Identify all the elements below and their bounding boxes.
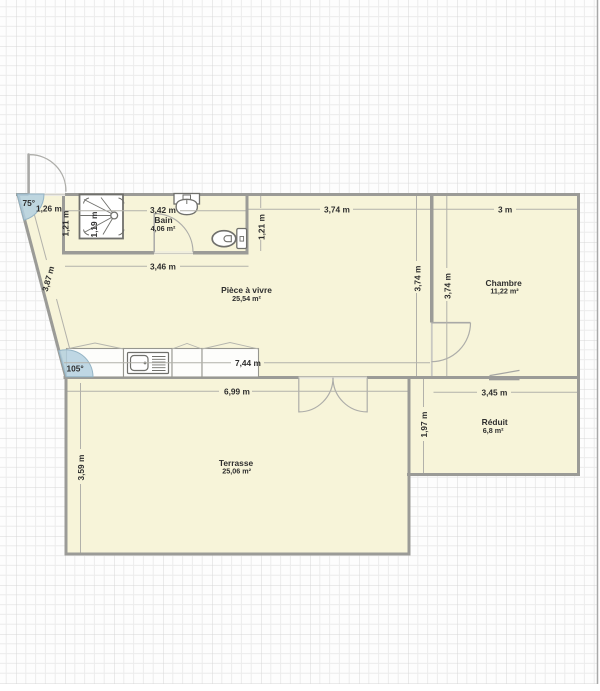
svg-text:11,22 m²: 11,22 m² xyxy=(490,287,519,296)
svg-text:25,54 m²: 25,54 m² xyxy=(232,294,261,303)
svg-text:75°: 75° xyxy=(23,198,36,208)
svg-text:3,46 m: 3,46 m xyxy=(150,261,176,271)
svg-text:1,26 m: 1,26 m xyxy=(36,204,62,214)
svg-text:1,19 m: 1,19 m xyxy=(89,212,99,238)
svg-text:3,74 m: 3,74 m xyxy=(324,204,350,214)
svg-text:6,99 m: 6,99 m xyxy=(224,386,250,396)
svg-text:3,74 m: 3,74 m xyxy=(413,266,423,292)
svg-text:1,21 m: 1,21 m xyxy=(60,211,70,237)
svg-text:7,44 m: 7,44 m xyxy=(235,358,261,368)
svg-text:4,06 m²: 4,06 m² xyxy=(151,224,176,233)
svg-text:105°: 105° xyxy=(67,364,84,374)
svg-text:6,8 m²: 6,8 m² xyxy=(483,426,504,435)
svg-text:3,74 m: 3,74 m xyxy=(443,273,453,299)
svg-text:25,06 m²: 25,06 m² xyxy=(222,467,251,476)
svg-text:3,59 m: 3,59 m xyxy=(76,455,86,481)
svg-text:1,97 m: 1,97 m xyxy=(419,412,429,438)
svg-text:1,21 m: 1,21 m xyxy=(257,214,267,240)
svg-text:3,42 m: 3,42 m xyxy=(150,205,176,215)
svg-text:3 m: 3 m xyxy=(498,204,512,214)
svg-text:3,45 m: 3,45 m xyxy=(482,388,508,398)
